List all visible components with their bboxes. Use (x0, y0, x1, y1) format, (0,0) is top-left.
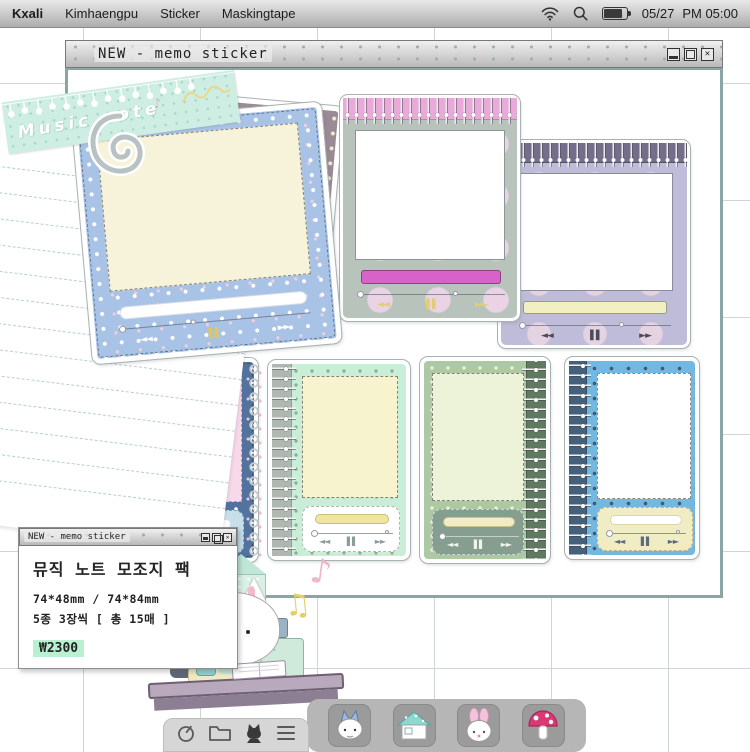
lavender-notepad-photo-area (515, 173, 673, 291)
folder-icon[interactable] (208, 723, 232, 747)
pause-icon: ▌▌ (641, 537, 651, 546)
menu-bar: Kxali Kimhaengpu Sticker Maskingtape 05/… (0, 0, 750, 28)
product-sizes: 74*48mm / 74*84mm (33, 592, 225, 606)
mint-sticker-player-panel: ◄◄ ▌▌ ►► (302, 506, 400, 552)
house-app-button[interactable] (393, 704, 436, 747)
info-close-button[interactable]: ✕ (223, 533, 232, 542)
sky-sticker-player-panel: ◄◄ ▌▌ ►► (597, 507, 693, 551)
desktop: { "menu_bar": { "brand": "Kxali", "items… (0, 0, 750, 750)
menu-date: 05/27 (642, 6, 675, 21)
forward-icon: ►► (501, 540, 511, 549)
lavender-notepad-seek-line (519, 325, 671, 326)
pink-notepad-progress-bar (361, 270, 501, 284)
pink-notepad-seek-line (357, 294, 505, 295)
dock-utilities (163, 718, 309, 752)
minimize-button[interactable] (667, 48, 680, 61)
lavender-notepad-sticker: ◄◄ ▌▌ ►► (498, 140, 690, 348)
sage-sticker-player-panel: ◄◄ ▌▌ ►► (432, 509, 524, 555)
forward-icon: ►► (375, 537, 385, 546)
coil-strip-doodle (245, 362, 263, 560)
pink-notepad-photo-area (355, 130, 505, 260)
menu-item-kimhaengpu[interactable]: Kimhaengpu (65, 6, 138, 21)
forward-icon: ►► (668, 537, 678, 546)
product-price: ₩2300 (33, 640, 84, 657)
menu-icon[interactable] (276, 725, 296, 746)
battery-icon (602, 7, 628, 20)
info-minimize-button[interactable] (201, 533, 210, 542)
pause-icon: ▌▌ (474, 540, 484, 549)
wifi-icon[interactable] (541, 7, 559, 21)
pause-icon: ▌▌ (347, 537, 357, 546)
dock-characters (307, 699, 586, 752)
rewind-icon: ◄◄ (140, 334, 153, 345)
forward-icon: ►► (475, 300, 487, 310)
pink-notepad-sticker: ◄◄ ▌▌ ►► (340, 95, 520, 321)
info-window-titlebar[interactable]: NEW - memo sticker ✕ (19, 528, 237, 546)
sage-notebook-sticker: ◄◄ ▌▌ ►► (420, 357, 550, 563)
menu-clock: 05/27 PM 05:00 (642, 6, 738, 21)
menu-time: PM 05:00 (682, 6, 738, 21)
rabbit-app-button[interactable] (457, 704, 500, 747)
menu-item-maskingtape[interactable]: Maskingtape (222, 6, 296, 21)
mushroom-app-button[interactable] (522, 704, 565, 747)
forward-icon: ►► (639, 331, 651, 341)
forward-icon: ►► (277, 322, 290, 333)
rewind-icon: ◄◄ (447, 540, 457, 549)
product-pack-info: 5종 3장씩 [ 총 15매 ] (33, 611, 225, 627)
mint-notebook-sticker: ◄◄ ▌▌ ►► (268, 360, 410, 560)
rewind-icon: ◄◄ (614, 537, 624, 546)
floating-note-yellow: ♫ (282, 587, 312, 625)
info-maximize-button[interactable] (212, 533, 221, 542)
main-window-title: NEW - memo sticker (94, 46, 272, 62)
sky-blue-notebook-sticker: ◄◄ ▌▌ ►► (565, 357, 699, 559)
info-window: NEW - memo sticker ✕ 뮤직 노트 모조지 팩 74*48mm… (18, 527, 238, 669)
pause-icon: ▌▌ (590, 331, 602, 341)
close-button[interactable]: ✕ (701, 48, 714, 61)
main-window-titlebar[interactable]: NEW - memo sticker ✕ (65, 40, 723, 68)
pause-icon: ▌▌ (426, 300, 438, 310)
menu-brand[interactable]: Kxali (12, 6, 43, 21)
pause-icon: ▌▌ (208, 328, 221, 339)
cat-app-button[interactable] (328, 704, 371, 747)
search-icon[interactable] (573, 6, 588, 21)
mint-sticker-photo-area (302, 376, 398, 498)
rewind-icon: ◄◄ (541, 331, 553, 341)
menu-item-sticker[interactable]: Sticker (160, 6, 200, 21)
sky-sticker-photo-area (597, 373, 691, 499)
rewind-icon: ◄◄ (319, 537, 329, 546)
rewind-icon: ◄◄ (377, 300, 389, 310)
maximize-button[interactable] (684, 48, 697, 61)
spiral-clip-doodle (84, 110, 156, 194)
product-name: 뮤직 노트 모조지 팩 (33, 556, 225, 580)
cat-silhouette-icon[interactable] (244, 722, 264, 749)
info-window-title: NEW - memo sticker (24, 532, 130, 542)
power-icon[interactable] (176, 723, 196, 748)
lavender-notepad-progress-bar (523, 301, 667, 314)
sage-sticker-photo-area (432, 373, 524, 501)
